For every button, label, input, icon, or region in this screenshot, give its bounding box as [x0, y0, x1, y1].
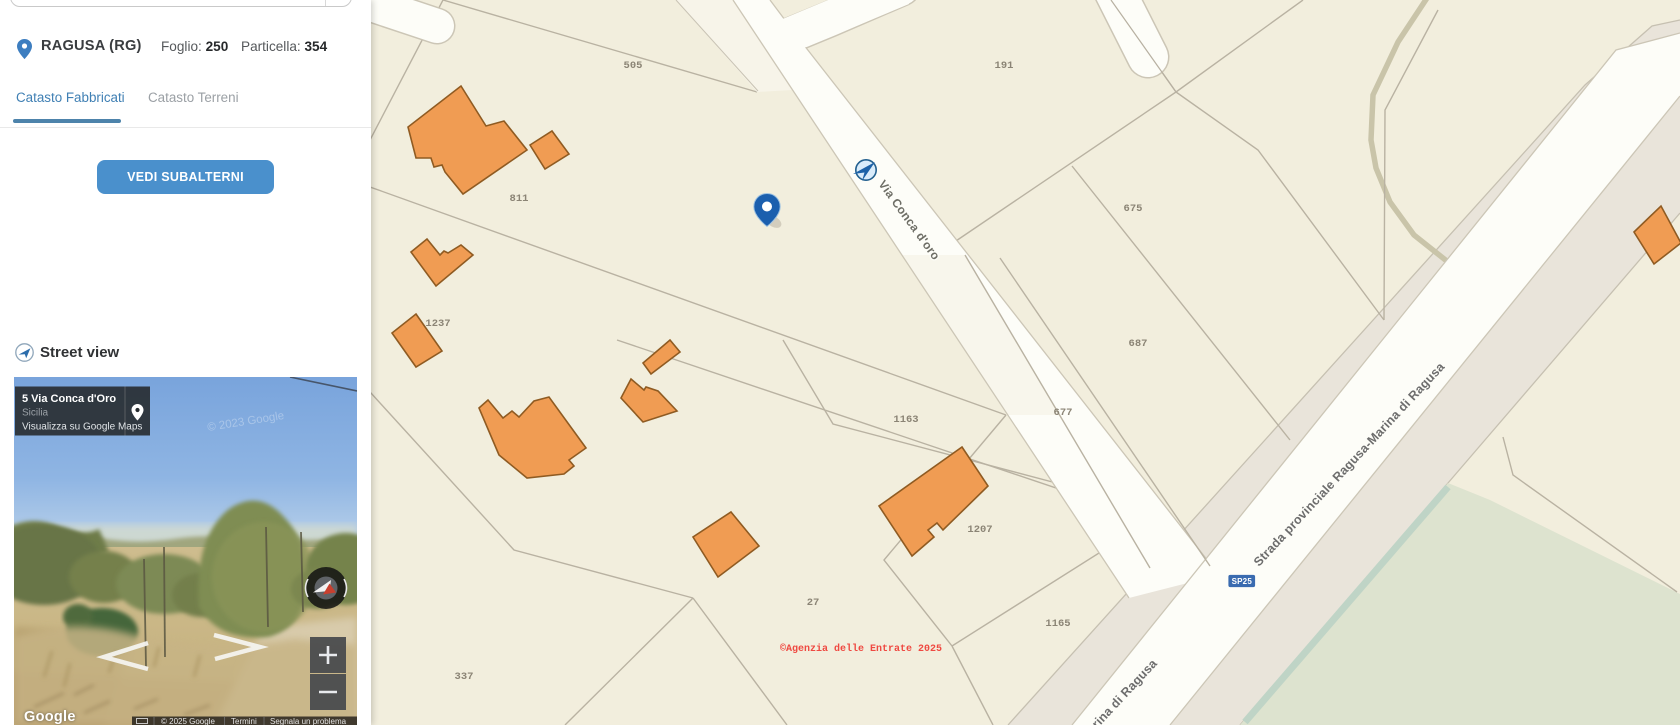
svg-text:1237: 1237 — [425, 318, 450, 330]
svg-text:675: 675 — [1124, 203, 1143, 215]
svg-text:811: 811 — [510, 193, 529, 205]
svg-text:Sicilia: Sicilia — [22, 408, 49, 419]
svg-text:687: 687 — [1129, 338, 1148, 350]
svg-text:Segnala un problema: Segnala un problema — [270, 717, 347, 725]
svg-text:SP25: SP25 — [1232, 577, 1253, 586]
svg-text:©Agenzia delle Entrate 2025: ©Agenzia delle Entrate 2025 — [780, 643, 942, 655]
svg-text:1207: 1207 — [967, 524, 992, 536]
svg-text:Google: Google — [24, 709, 76, 725]
svg-text:1163: 1163 — [893, 414, 918, 426]
svg-text:© 2025 Google: © 2025 Google — [161, 717, 215, 725]
svg-text:1165: 1165 — [1045, 618, 1070, 630]
svg-text:191: 191 — [995, 60, 1014, 72]
svg-text:Visualizza su Google Maps: Visualizza su Google Maps — [22, 422, 142, 433]
svg-text:Termini: Termini — [231, 717, 257, 725]
svg-text:5 Via Conca d'Oro: 5 Via Conca d'Oro — [22, 393, 116, 405]
svg-text:677: 677 — [1054, 407, 1073, 419]
svg-text:505: 505 — [624, 60, 643, 72]
svg-text:27: 27 — [807, 597, 820, 609]
svg-text:337: 337 — [455, 671, 474, 683]
